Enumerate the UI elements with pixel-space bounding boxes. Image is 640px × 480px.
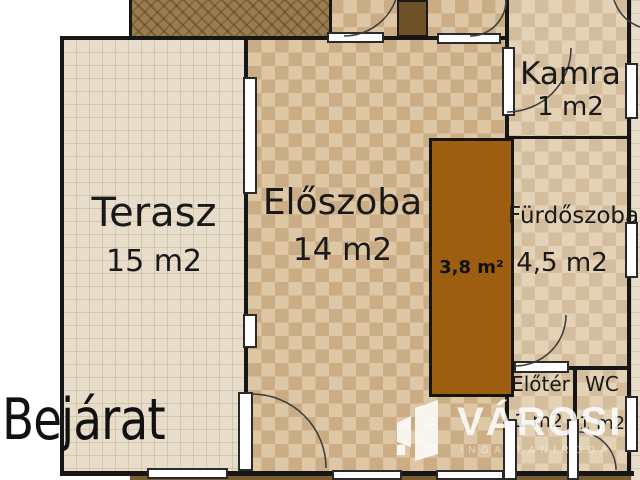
floor-plan: 3,8 m² Terasz 15 m2 Előszoba 14 m2 Kamra… <box>0 0 640 480</box>
room-terasz-area: 15 m2 <box>63 246 245 278</box>
room-terasz-name: Terasz <box>63 192 245 234</box>
room-kamra-area: 1 m2 <box>513 94 628 121</box>
door-sill <box>437 33 501 44</box>
window-right-2 <box>625 222 638 278</box>
room-built-in: 3,8 m² <box>429 138 514 397</box>
upper-room-floor-b <box>428 0 505 37</box>
room-eloszoba-name: Előszoba <box>250 184 435 222</box>
window-terasz <box>243 77 257 194</box>
wall-kamra-bottom <box>505 136 631 139</box>
room-built-in-area: 3,8 m² <box>439 257 504 278</box>
door-entrance <box>238 392 253 471</box>
room-furdoszoba-name: Fürdőszoba <box>508 204 630 228</box>
door-terasz <box>243 314 257 348</box>
entrance-label: Bejárat <box>2 387 165 453</box>
door-sill <box>327 32 384 43</box>
room-kamra-name: Kamra <box>513 58 628 91</box>
upper-dark-cabinet <box>397 0 428 37</box>
wall <box>329 0 332 36</box>
door-bottom-2 <box>332 470 402 480</box>
door-bottom-1 <box>147 468 228 479</box>
room-wc-name: WC <box>576 374 628 395</box>
room-furdoszoba-area: 4,5 m2 <box>508 250 616 277</box>
wall <box>129 0 132 36</box>
upper-room-wood-floor <box>130 0 330 37</box>
door-bottom-3 <box>436 470 504 480</box>
room-eloter-name: Előtér <box>508 374 573 395</box>
room-wc-area: 1 m2 <box>576 415 628 434</box>
room-eloszoba-area: 14 m2 <box>250 234 435 267</box>
room-eloter-area: 1 m2 <box>506 412 571 432</box>
